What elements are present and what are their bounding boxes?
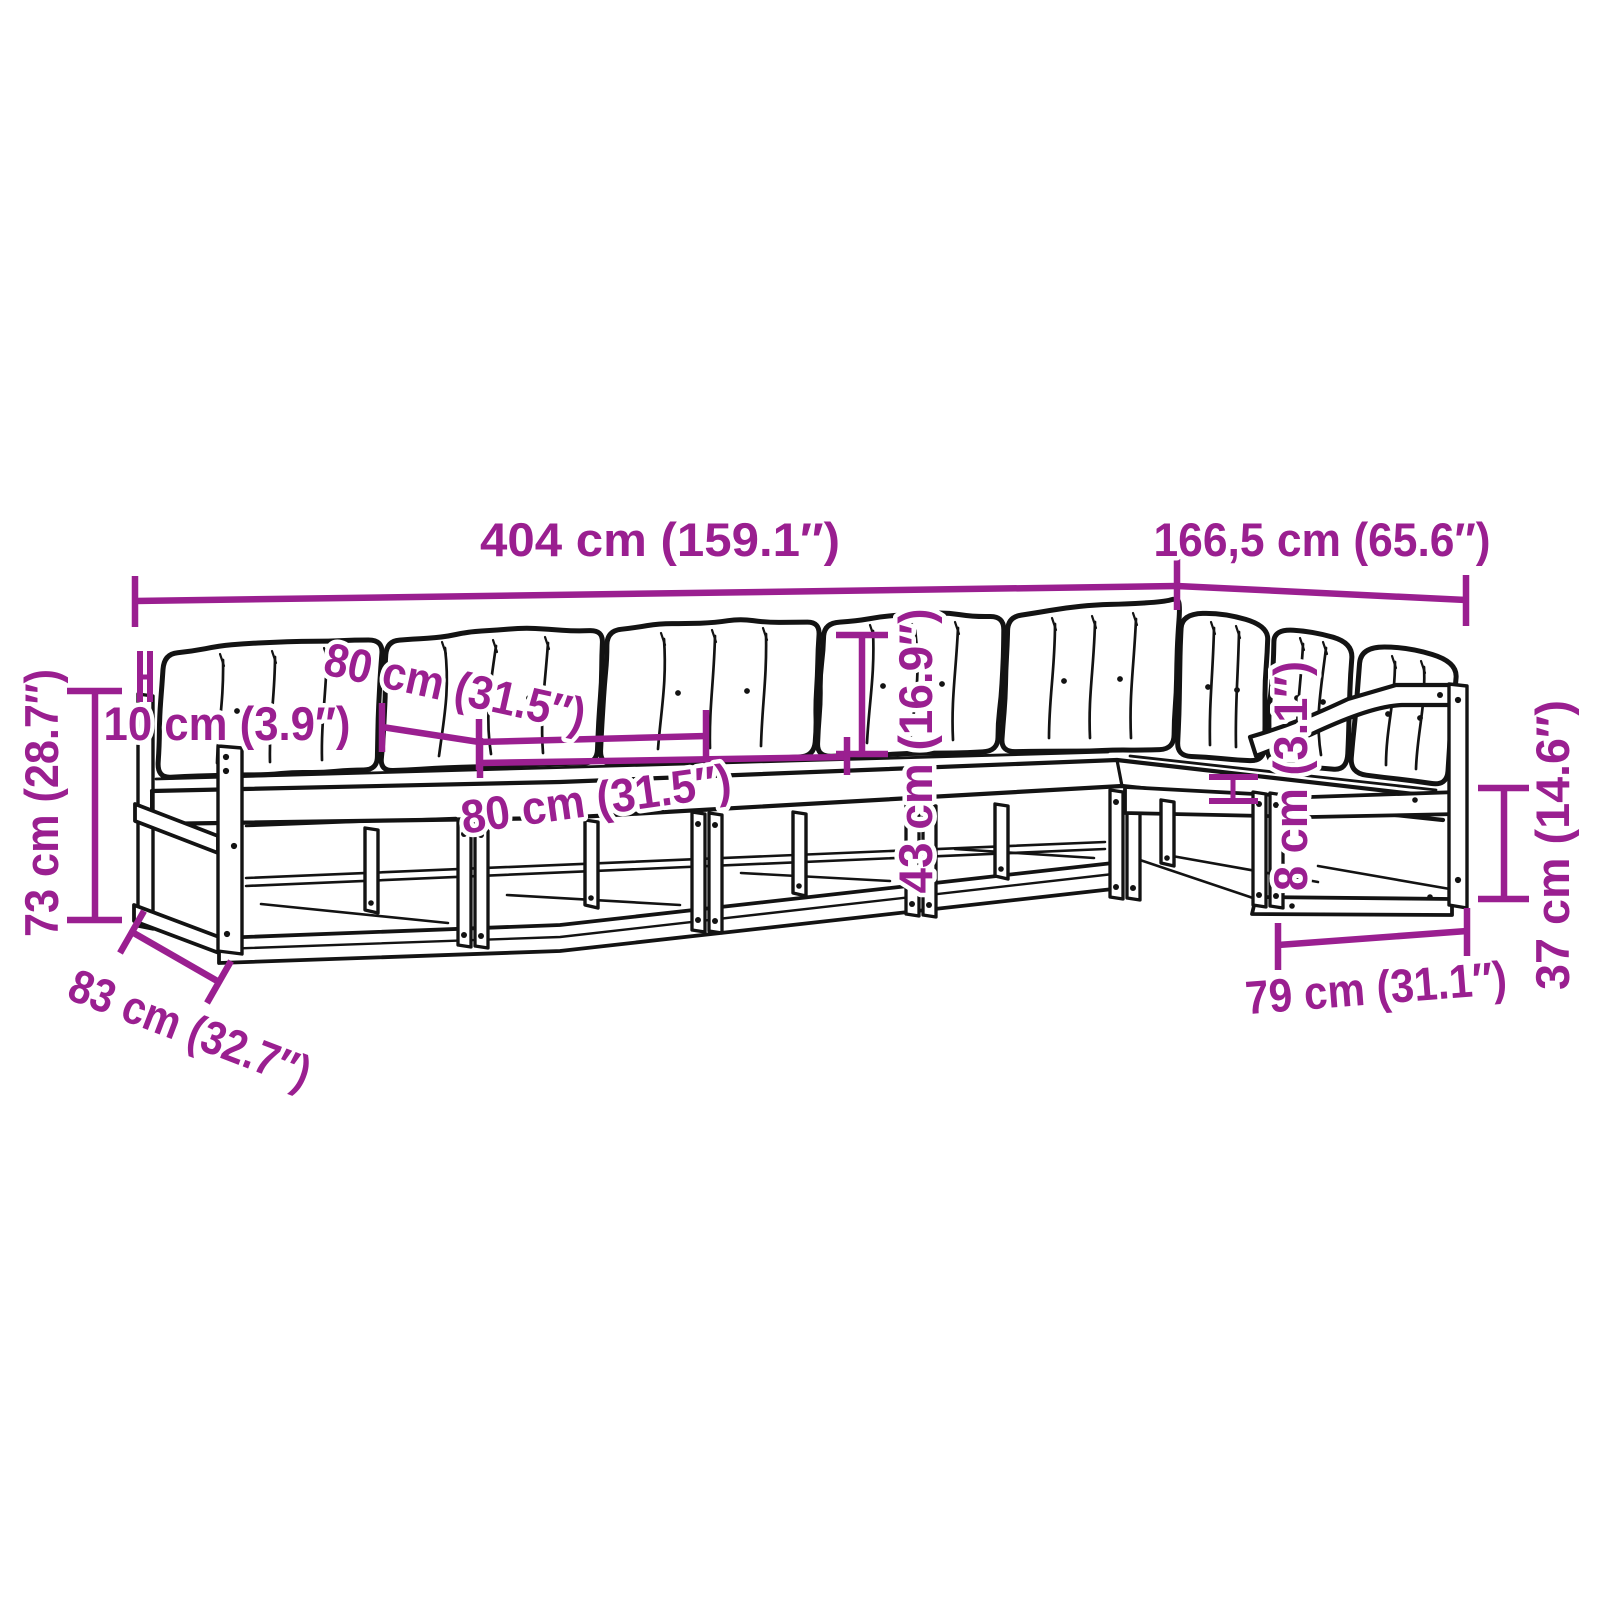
svg-text:404 cm (159.1″): 404 cm (159.1″): [480, 513, 840, 566]
svg-text:8 cm (3.1″): 8 cm (3.1″): [1264, 661, 1317, 891]
svg-text:37 cm (14.6″): 37 cm (14.6″): [1526, 700, 1579, 990]
svg-text:73 cm (28.7″): 73 cm (28.7″): [15, 669, 68, 937]
svg-text:43 cm (16.9″): 43 cm (16.9″): [889, 609, 942, 894]
svg-text:10 cm (3.9″): 10 cm (3.9″): [104, 697, 351, 750]
svg-text:166,5 cm (65.6″): 166,5 cm (65.6″): [1154, 513, 1491, 566]
